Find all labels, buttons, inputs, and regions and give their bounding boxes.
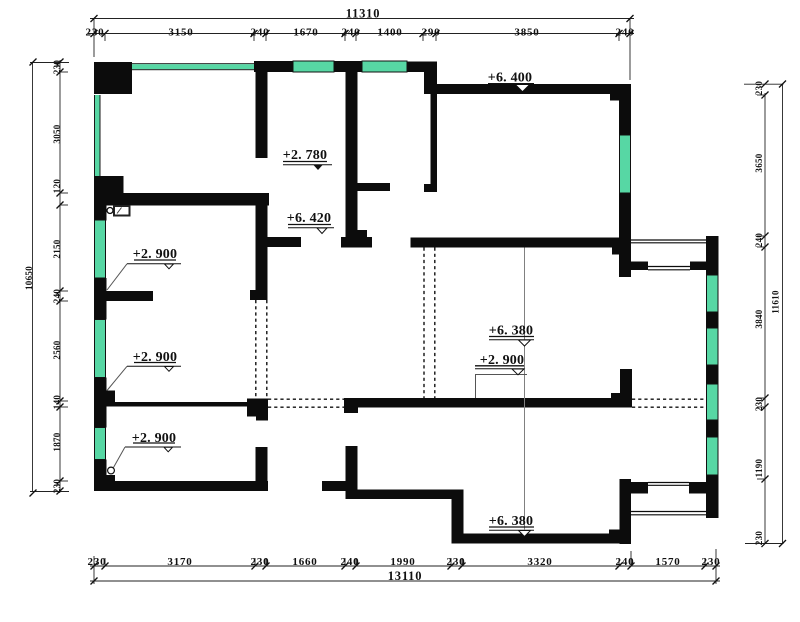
svg-text:230: 230 bbox=[88, 556, 107, 568]
svg-text:230: 230 bbox=[447, 556, 466, 568]
svg-text:230: 230 bbox=[754, 397, 764, 412]
svg-text:1870: 1870 bbox=[52, 432, 62, 451]
svg-text:230: 230 bbox=[702, 556, 721, 568]
svg-text:1400: 1400 bbox=[377, 27, 402, 39]
svg-text:3170: 3170 bbox=[167, 556, 192, 568]
svg-text:11310: 11310 bbox=[346, 7, 381, 21]
svg-text:+2. 780: +2. 780 bbox=[283, 148, 327, 163]
svg-text:2560: 2560 bbox=[52, 340, 62, 359]
svg-text:+2. 900: +2. 900 bbox=[132, 431, 176, 446]
svg-text:1670: 1670 bbox=[293, 27, 318, 39]
svg-text:3150: 3150 bbox=[168, 27, 193, 39]
svg-text:230: 230 bbox=[754, 81, 764, 96]
svg-text:3320: 3320 bbox=[527, 556, 552, 568]
svg-text:240: 240 bbox=[342, 27, 361, 39]
svg-text:3650: 3650 bbox=[754, 153, 764, 172]
svg-text:240: 240 bbox=[341, 556, 360, 568]
svg-text:10650: 10650 bbox=[24, 266, 34, 290]
svg-text:13110: 13110 bbox=[388, 569, 423, 583]
svg-text:240: 240 bbox=[754, 233, 764, 248]
svg-text:240: 240 bbox=[616, 27, 635, 39]
svg-text:230: 230 bbox=[754, 531, 764, 546]
svg-text:11610: 11610 bbox=[771, 290, 781, 314]
svg-text:1570: 1570 bbox=[655, 556, 680, 568]
svg-text:230: 230 bbox=[251, 556, 270, 568]
svg-text:240: 240 bbox=[251, 27, 270, 39]
svg-text:1660: 1660 bbox=[292, 556, 317, 568]
svg-text:240: 240 bbox=[616, 556, 635, 568]
svg-text:230: 230 bbox=[86, 27, 105, 39]
svg-text:240: 240 bbox=[52, 289, 62, 304]
svg-text:230: 230 bbox=[52, 60, 62, 75]
svg-text:2150: 2150 bbox=[52, 239, 62, 258]
svg-text:230: 230 bbox=[52, 479, 62, 494]
svg-text:3050: 3050 bbox=[52, 124, 62, 143]
svg-text:140: 140 bbox=[52, 395, 62, 410]
svg-text:3840: 3840 bbox=[754, 309, 764, 328]
svg-text:+6. 420: +6. 420 bbox=[287, 211, 331, 226]
svg-text:1190: 1190 bbox=[754, 458, 764, 477]
svg-text:3850: 3850 bbox=[514, 27, 539, 39]
svg-text:120: 120 bbox=[52, 179, 62, 194]
svg-text:1990: 1990 bbox=[390, 556, 415, 568]
svg-text:290: 290 bbox=[422, 27, 441, 39]
